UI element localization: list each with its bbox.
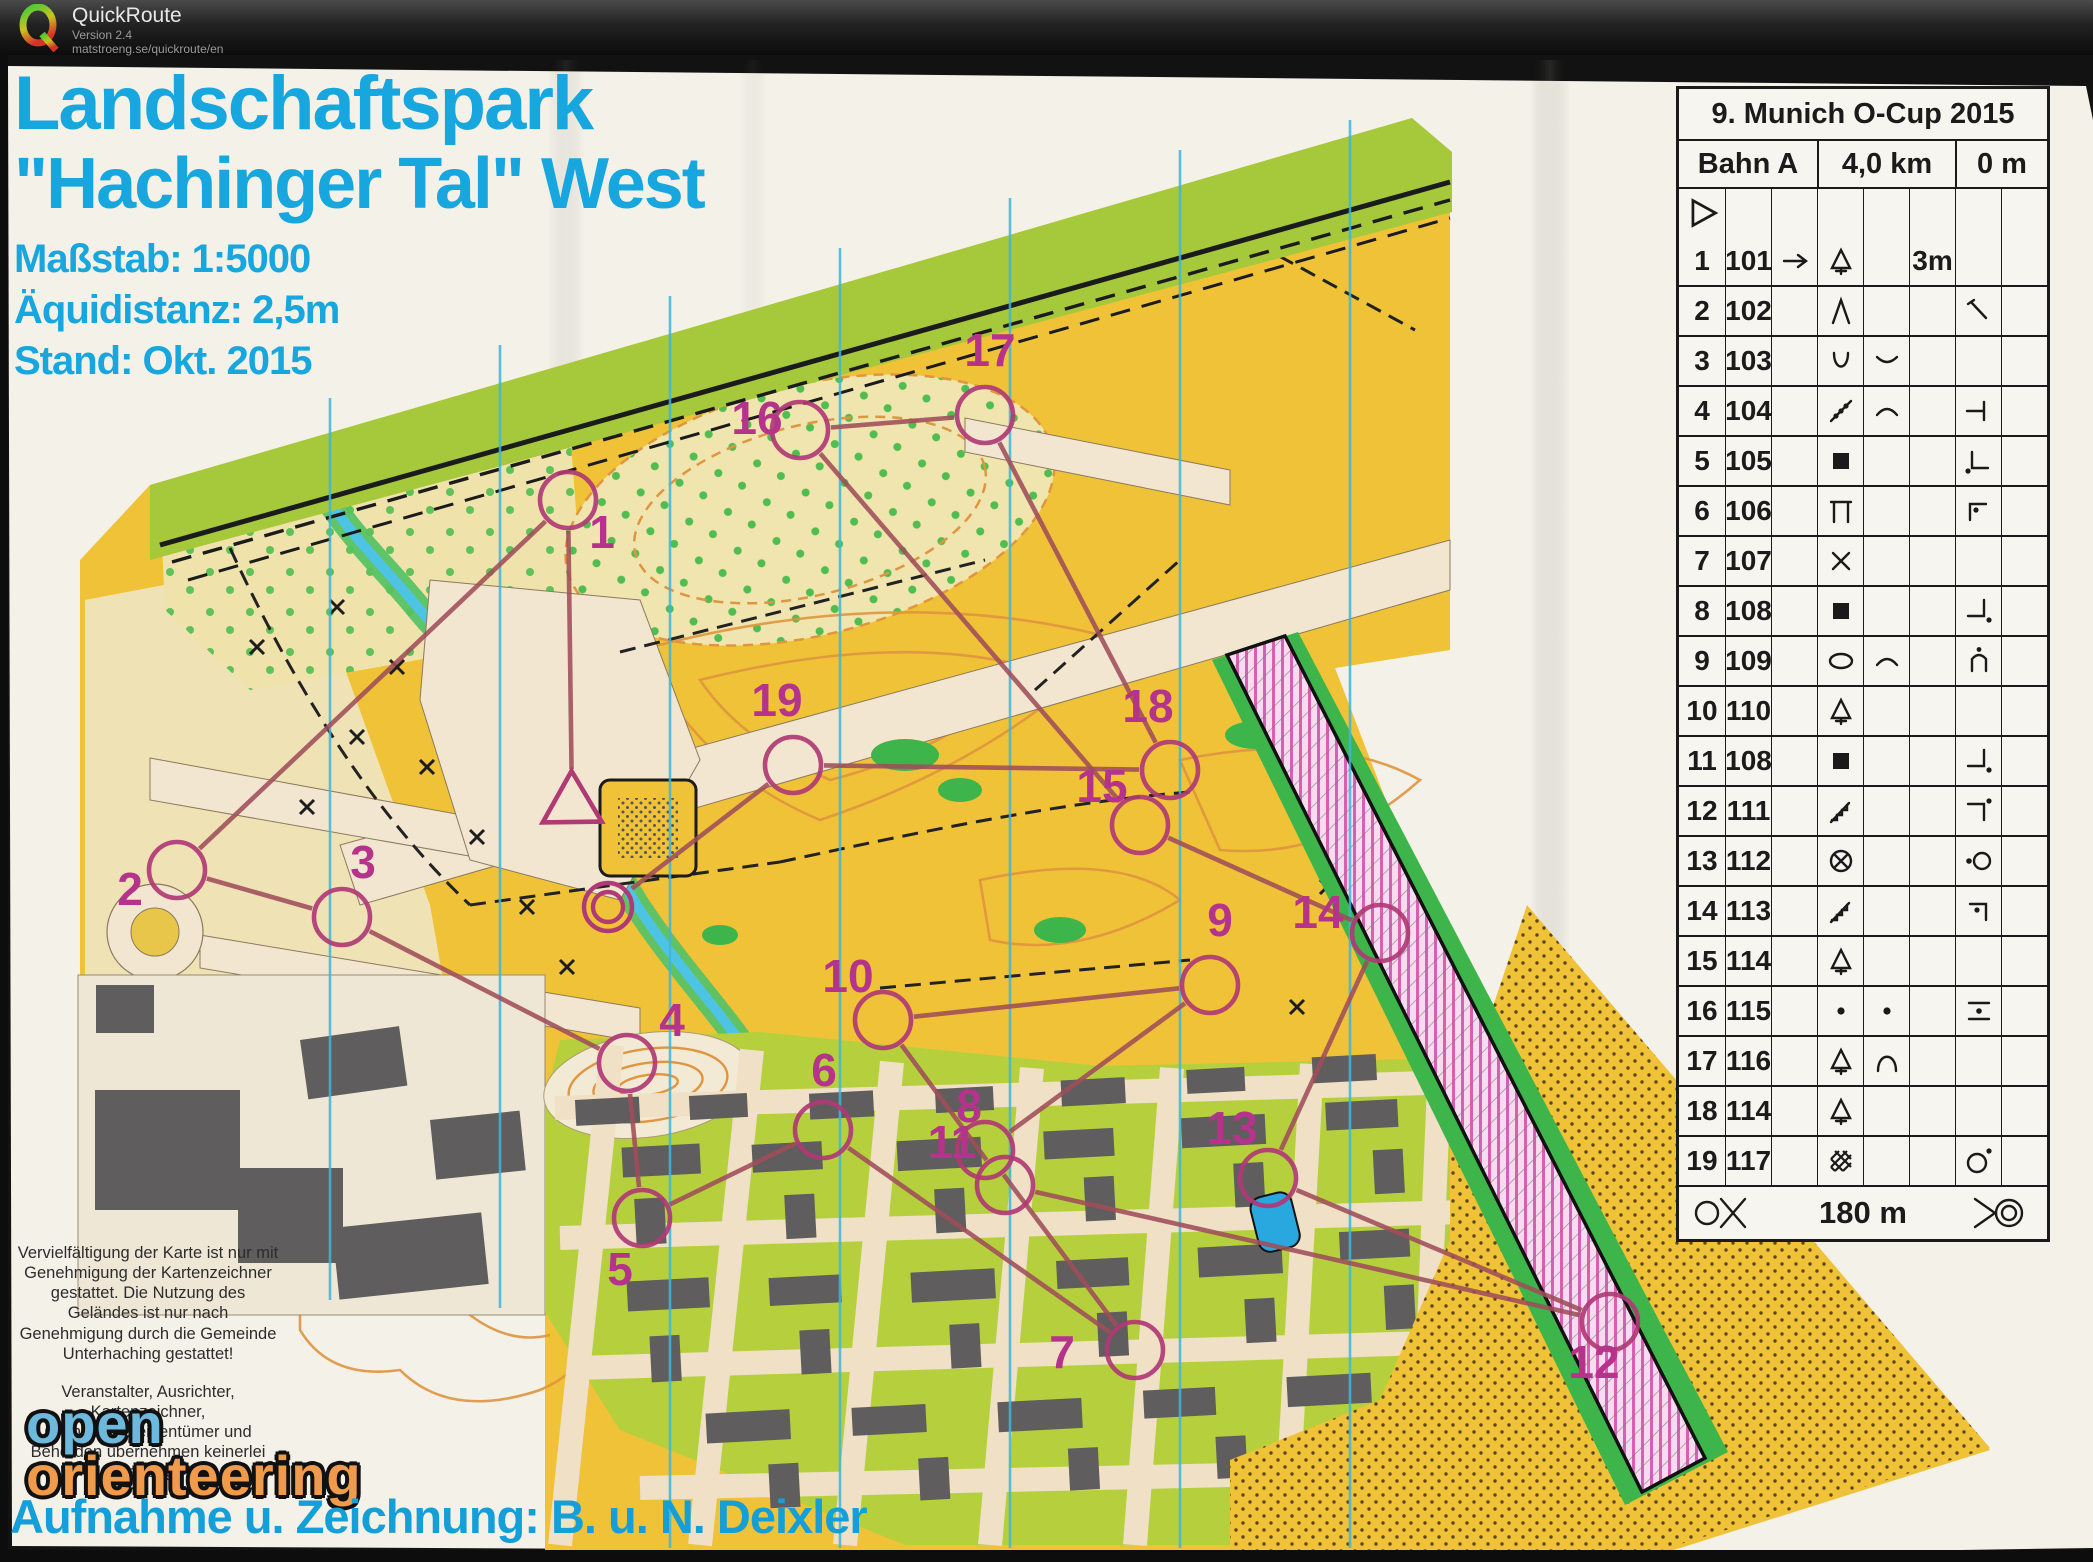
control-row-7: 7107 (1679, 535, 2047, 585)
control-row-19: 19117 (1679, 1135, 2047, 1185)
corner-se-dot-icon (1964, 746, 1994, 776)
map-equidistance: Äquidistanz: 2,5m (14, 285, 704, 336)
col-f (1909, 287, 1955, 335)
col-e (1863, 337, 1909, 385)
control-number: 6 (1679, 487, 1725, 535)
control-code: 112 (1725, 837, 1771, 885)
copse-icon (1826, 646, 1856, 676)
control-code: 114 (1725, 937, 1771, 985)
dot-circle-icon (1964, 846, 1994, 876)
control-code: 110 (1725, 687, 1771, 735)
control-number: 18 (1679, 1087, 1725, 1135)
col-d (1817, 287, 1863, 335)
col-d (1817, 887, 1863, 935)
col-e (1863, 937, 1909, 985)
col-e (1863, 237, 1909, 285)
control-row-4: 4104 (1679, 385, 2047, 435)
col-g (1955, 387, 2001, 435)
col-d (1817, 387, 1863, 435)
control-number-label-3: 3 (350, 836, 376, 888)
building-icon (1826, 596, 1856, 626)
col-g (1955, 737, 2001, 785)
control-row-11: 11108 (1679, 735, 2047, 785)
col-e (1863, 387, 1909, 435)
col-g (1955, 787, 2001, 835)
course-leg-0 (568, 531, 571, 769)
col-f (1909, 437, 1955, 485)
col-f (1909, 687, 1955, 735)
finish-row: 180 m (1679, 1185, 2047, 1239)
col-h (2001, 287, 2047, 335)
col-e (1863, 487, 1909, 535)
col-g (1955, 1037, 2001, 1085)
control-number: 14 (1679, 887, 1725, 935)
quickroute-window: 12345678910111213141516171819 QuickRoute… (0, 0, 2093, 1562)
control-code: 104 (1725, 387, 1771, 435)
map-scale: Maßstab: 1:5000 (14, 234, 704, 285)
control-row-6: 6106 (1679, 485, 2047, 535)
col-g (1955, 437, 2001, 485)
cross-icon (1826, 546, 1856, 576)
corner-nw-dot2-icon (1964, 896, 1994, 926)
course-climb: 0 m (1955, 141, 2047, 187)
control-code: 113 (1725, 887, 1771, 935)
col-e (1863, 287, 1909, 335)
col-d (1817, 1037, 1863, 1085)
col-e (1863, 1087, 1909, 1135)
col-f (1909, 837, 1955, 885)
control-number-label-15: 15 (1076, 760, 1127, 812)
tree-icon (1826, 246, 1856, 276)
control-code: 103 (1725, 337, 1771, 385)
col-h (2001, 987, 2047, 1035)
col-h (2001, 1087, 2047, 1135)
logo-word-open: open (26, 1398, 362, 1450)
col-f (1909, 737, 1955, 785)
col-g (1955, 337, 2001, 385)
col-c (1771, 637, 1817, 685)
col-f (1909, 637, 1955, 685)
col-d (1817, 787, 1863, 835)
tree-icon (1826, 946, 1856, 976)
col-h (2001, 787, 2047, 835)
control-number: 3 (1679, 337, 1725, 385)
control-code: 117 (1725, 1137, 1771, 1185)
canopy-icon (1826, 496, 1856, 526)
col-g (1955, 237, 2001, 285)
col-e (1863, 537, 1909, 585)
col-d (1817, 537, 1863, 585)
col-f: 3m (1909, 237, 1955, 285)
circle-dot-icon (1964, 1146, 1994, 1176)
control-code: 101 (1725, 237, 1771, 285)
col-e (1863, 837, 1909, 885)
control-number-label-1: 1 (589, 506, 615, 558)
control-code: 108 (1725, 587, 1771, 635)
col-f (1909, 1037, 1955, 1085)
control-number-label-6: 6 (811, 1044, 837, 1096)
col-f (1909, 787, 1955, 835)
col-c (1771, 937, 1817, 985)
control-number-label-11: 11 (928, 1116, 977, 1168)
col-c (1771, 737, 1817, 785)
col-c (1771, 587, 1817, 635)
stairs-icon (1826, 796, 1856, 826)
col-d (1817, 337, 1863, 385)
col-f (1909, 337, 1955, 385)
disclaimer-paragraph-1: Vervielfältigung der Karte ist nur mit G… (14, 1243, 282, 1364)
col-g (1955, 937, 2001, 985)
col-d (1817, 687, 1863, 735)
control-number: 9 (1679, 637, 1725, 685)
col-h (2001, 887, 2047, 935)
col-f (1909, 887, 1955, 935)
col-c (1771, 687, 1817, 735)
col-e (1863, 887, 1909, 935)
control-number: 16 (1679, 987, 1725, 1035)
finish-icon (1955, 1187, 2047, 1239)
tree-icon (1826, 1046, 1856, 1076)
col-h (2001, 737, 2047, 785)
col-h (2001, 587, 2047, 635)
junction-icon (1964, 296, 1994, 326)
control-number: 1 (1679, 237, 1725, 285)
open-orienteering-logo: open orienteering (26, 1398, 362, 1501)
col-d (1817, 737, 1863, 785)
start-symbol-cell (1679, 189, 1725, 237)
col-d (1817, 487, 1863, 535)
taped-route-icon (1679, 1187, 1771, 1239)
map-title-block: Landschaftspark "Hachinger Tal" West Maß… (14, 66, 704, 388)
control-row-1: 11013m (1679, 237, 2047, 285)
col-f (1909, 587, 1955, 635)
control-number: 8 (1679, 587, 1725, 635)
control-number: 10 (1679, 687, 1725, 735)
col-g (1955, 1087, 2001, 1135)
control-code: 102 (1725, 287, 1771, 335)
col-c (1771, 987, 1817, 1035)
col-g (1955, 687, 2001, 735)
u-shape-icon (1826, 346, 1856, 376)
tree-icon (1826, 696, 1856, 726)
control-code: 106 (1725, 487, 1771, 535)
col-c (1771, 1037, 1817, 1085)
control-code: 115 (1725, 987, 1771, 1035)
col-e (1863, 987, 1909, 1035)
map-title-line1: Landschaftspark (14, 66, 704, 142)
col-e (1863, 637, 1909, 685)
control-row-3: 3103 (1679, 335, 2047, 385)
arc-dn-icon (1872, 346, 1902, 376)
col-e (1863, 587, 1909, 635)
control-number: 17 (1679, 1037, 1725, 1085)
col-f (1909, 487, 1955, 535)
control-code: 108 (1725, 737, 1771, 785)
thicket-icon (1826, 1146, 1856, 1176)
col-g (1955, 987, 2001, 1035)
col-h (2001, 1137, 2047, 1185)
knoll-icon (1872, 1046, 1902, 1076)
col-g (1955, 487, 2001, 535)
col-e (1863, 687, 1909, 735)
control-row-14: 14113 (1679, 885, 2047, 935)
col-h (2001, 437, 2047, 485)
special-icon (1826, 846, 1856, 876)
control-row-12: 12111 (1679, 785, 2047, 835)
col-e (1863, 1037, 1909, 1085)
col-h (2001, 837, 2047, 885)
col-g (1955, 887, 2001, 935)
control-number-label-16: 16 (731, 392, 782, 444)
control-number: 11 (1679, 737, 1725, 785)
control-number-label-19: 19 (751, 674, 802, 726)
col-g (1955, 587, 2001, 635)
course-length: 4,0 km (1817, 141, 1955, 187)
col-d (1817, 837, 1863, 885)
arc-up-icon (1872, 646, 1902, 676)
col-f (1909, 537, 1955, 585)
control-number: 5 (1679, 437, 1725, 485)
map-credit: Aufnahme u. Zeichnung: B. u. N. Deixler (10, 1489, 867, 1544)
event-title: 9. Munich O-Cup 2015 (1679, 89, 2047, 139)
tree-icon (1826, 1096, 1856, 1126)
control-number-label-17: 17 (964, 324, 1015, 376)
control-number-label-13: 13 (1206, 1102, 1257, 1154)
col-h (2001, 237, 2047, 285)
col-d (1817, 937, 1863, 985)
control-number: 4 (1679, 387, 1725, 435)
col-d (1817, 437, 1863, 485)
col-h (2001, 537, 2047, 585)
control-number-label-12: 12 (1568, 1336, 1619, 1388)
control-row-9: 9109 (1679, 635, 2047, 685)
control-number-label-7: 7 (1049, 1326, 1075, 1378)
control-number: 2 (1679, 287, 1725, 335)
col-f (1909, 1087, 1955, 1135)
map-title-line2: "Hachinger Tal" West (14, 148, 704, 220)
course-name: Bahn A (1679, 141, 1817, 187)
start-tri-icon (1685, 196, 1719, 230)
control-row-15: 15114 (1679, 935, 2047, 985)
col-h (2001, 637, 2047, 685)
control-code: 116 (1725, 1037, 1771, 1085)
control-row-8: 8108 (1679, 585, 2047, 635)
control-number-label-2: 2 (117, 863, 143, 915)
col-f (1909, 1137, 1955, 1185)
building-icon (1826, 746, 1856, 776)
col-c (1771, 837, 1817, 885)
control-number-label-4: 4 (659, 994, 685, 1046)
col-c (1771, 787, 1817, 835)
finish-distance: 180 m (1771, 1187, 1955, 1239)
control-number-label-14: 14 (1292, 886, 1344, 938)
control-row-2: 2102 (1679, 285, 2047, 335)
control-number-label-18: 18 (1122, 680, 1173, 732)
start-row (1679, 187, 2047, 237)
control-number-label-10: 10 (822, 950, 873, 1002)
col-h (2001, 387, 2047, 435)
map-status: Stand: Okt. 2015 (14, 336, 704, 387)
col-e (1863, 1137, 1909, 1185)
control-row-17: 17116 (1679, 1035, 2047, 1085)
control-row-13: 13112 (1679, 835, 2047, 885)
col-c (1771, 537, 1817, 585)
col-g (1955, 287, 2001, 335)
col-c (1771, 437, 1817, 485)
stairs-icon (1826, 896, 1856, 926)
control-code: 114 (1725, 1087, 1771, 1135)
col-c (1771, 337, 1817, 385)
app-title: QuickRoute (72, 4, 182, 28)
control-row-10: 10110 (1679, 685, 2047, 735)
control-number: 12 (1679, 787, 1725, 835)
col-f (1909, 987, 1955, 1035)
col-g (1955, 837, 2001, 885)
col-c (1771, 237, 1817, 285)
col-e (1863, 437, 1909, 485)
control-number: 19 (1679, 1137, 1725, 1185)
col-d (1817, 237, 1863, 285)
col-h (2001, 687, 2047, 735)
titlebar: QuickRoute Version 2.4 matstroeng.se/qui… (0, 0, 2093, 55)
control-row-5: 5105 (1679, 435, 2047, 485)
arc-up-icon (1872, 396, 1902, 426)
col-d (1817, 1087, 1863, 1135)
corner-sw-dot-icon (1964, 446, 1994, 476)
col-d (1817, 1137, 1863, 1185)
app-url[interactable]: matstroeng.se/quickroute/en (72, 42, 223, 56)
app-version: Version 2.4 (72, 28, 132, 42)
col-f (1909, 387, 1955, 435)
col-h (2001, 1037, 2047, 1085)
col-c (1771, 1087, 1817, 1135)
control-description-sheet: 9. Munich O-Cup 2015 Bahn A 4,0 km 0 m 1… (1676, 86, 2050, 1242)
dot-icon (1826, 996, 1856, 1026)
col-g (1955, 637, 2001, 685)
control-code: 109 (1725, 637, 1771, 685)
col-c (1771, 487, 1817, 535)
col-h (2001, 337, 2047, 385)
col-c (1771, 287, 1817, 335)
col-h (2001, 937, 2047, 985)
control-row-16: 16115 (1679, 985, 2047, 1035)
col-f (1909, 937, 1955, 985)
col-e (1863, 737, 1909, 785)
control-number: 7 (1679, 537, 1725, 585)
corner-se-dot-icon (1964, 596, 1994, 626)
control-number: 13 (1679, 837, 1725, 885)
col-d (1817, 637, 1863, 685)
control-code: 111 (1725, 787, 1771, 835)
control-number: 15 (1679, 937, 1725, 985)
col-d (1817, 587, 1863, 635)
control-code: 105 (1725, 437, 1771, 485)
quickroute-logo-icon (16, 4, 64, 52)
corner-ne-dot-icon (1964, 796, 1994, 826)
arrow-right-icon (1780, 246, 1810, 276)
col-c (1771, 387, 1817, 435)
control-row-18: 18114 (1679, 1085, 2047, 1135)
n-dot-icon (1964, 646, 1994, 676)
col-c (1771, 1137, 1817, 1185)
control-number-label-5: 5 (607, 1243, 633, 1295)
col-h (2001, 487, 2047, 535)
corner-nw-dot-icon (1964, 496, 1994, 526)
col-c (1771, 887, 1817, 935)
spike-icon (1826, 296, 1856, 326)
veg-line-icon (1826, 396, 1856, 426)
tbar-icon (1964, 396, 1994, 426)
building-icon (1826, 446, 1856, 476)
col-g (1955, 537, 2001, 585)
between-icon (1964, 996, 1994, 1026)
col-e (1863, 787, 1909, 835)
dot-icon (1872, 996, 1902, 1026)
col-g (1955, 1137, 2001, 1185)
control-number-label-9: 9 (1207, 894, 1233, 946)
col-d (1817, 987, 1863, 1035)
control-code: 107 (1725, 537, 1771, 585)
